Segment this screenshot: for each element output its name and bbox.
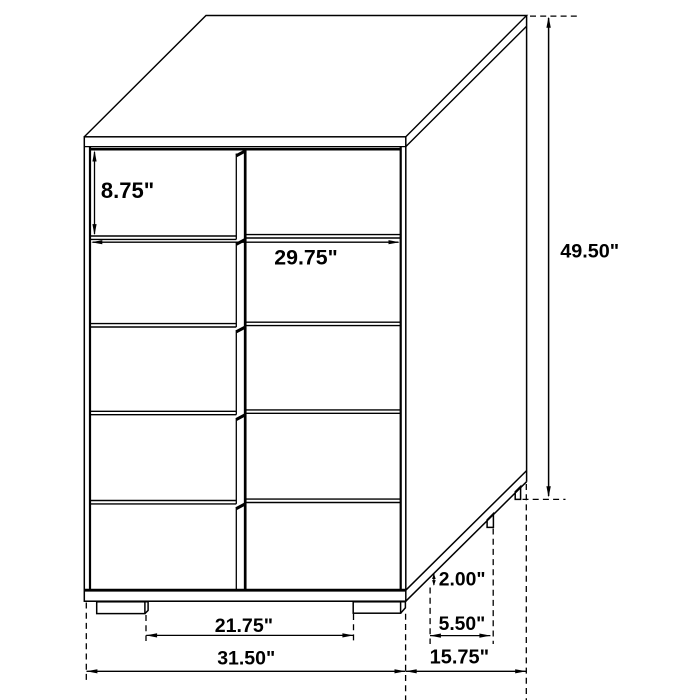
svg-text:8.75": 8.75" xyxy=(101,178,154,203)
svg-text:49.50": 49.50" xyxy=(560,241,619,263)
svg-text:15.75": 15.75" xyxy=(430,646,490,668)
svg-text:29.75": 29.75" xyxy=(274,246,337,270)
svg-text:5.50": 5.50" xyxy=(439,614,486,635)
svg-text:21.75": 21.75" xyxy=(215,615,273,637)
svg-text:31.50": 31.50" xyxy=(217,647,275,669)
svg-text:2.00": 2.00" xyxy=(439,569,486,590)
